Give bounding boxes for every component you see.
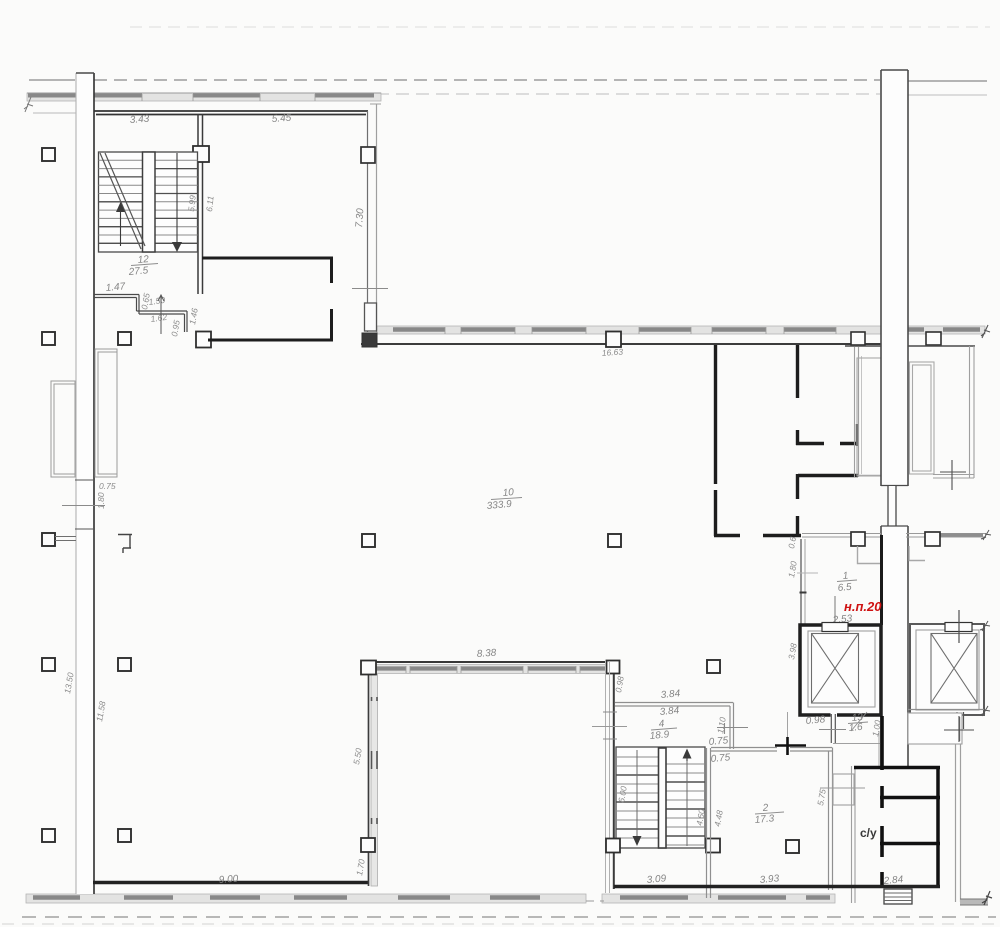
svg-text:333.9: 333.9 (486, 499, 512, 512)
svg-text:3.98: 3.98 (786, 642, 799, 660)
svg-text:1.10: 1.10 (715, 716, 728, 734)
svg-text:6.11: 6.11 (204, 195, 216, 212)
svg-text:0.98: 0.98 (805, 714, 826, 727)
svg-text:0.75: 0.75 (708, 735, 729, 748)
svg-text:3.43: 3.43 (129, 114, 150, 126)
svg-text:1.46: 1.46 (187, 307, 200, 325)
svg-text:13.50: 13.50 (62, 671, 76, 694)
svg-text:27.5: 27.5 (127, 265, 149, 278)
svg-text:18.9: 18.9 (649, 729, 670, 742)
svg-text:5.99: 5.99 (186, 194, 198, 212)
svg-text:1.62: 1.62 (150, 312, 168, 324)
svg-text:5.75: 5.75 (815, 788, 828, 806)
svg-text:4.48: 4.48 (712, 809, 725, 827)
svg-text:1.80: 1.80 (96, 492, 106, 509)
svg-text:1.6: 1.6 (848, 722, 863, 734)
svg-text:с/у: с/у (860, 826, 877, 840)
svg-text:3.93: 3.93 (759, 873, 780, 886)
svg-text:0.98: 0.98 (613, 675, 626, 693)
svg-text:1.50: 1.50 (148, 295, 166, 307)
svg-text:3.09: 3.09 (646, 873, 667, 886)
svg-text:0.75: 0.75 (710, 752, 731, 765)
svg-text:8.38: 8.38 (476, 648, 497, 660)
svg-text:16.63: 16.63 (601, 347, 623, 358)
svg-text:6.5: 6.5 (837, 582, 852, 594)
svg-text:7.30: 7.30 (354, 208, 366, 229)
svg-text:0.95: 0.95 (169, 319, 182, 337)
svg-text:0.6: 0.6 (786, 536, 798, 550)
svg-text:1.47: 1.47 (105, 281, 126, 294)
svg-text:н.п.20: н.п.20 (844, 599, 882, 614)
svg-text:2: 2 (761, 803, 769, 815)
svg-text:4: 4 (658, 719, 665, 730)
svg-text:5.50: 5.50 (351, 747, 364, 765)
svg-text:3.84: 3.84 (659, 705, 680, 718)
svg-text:0.75: 0.75 (99, 481, 116, 491)
svg-text:9.00: 9.00 (218, 874, 239, 886)
svg-text:10: 10 (502, 487, 514, 499)
svg-text:1.70: 1.70 (354, 858, 367, 876)
svg-text:11.58: 11.58 (94, 700, 107, 722)
svg-text:5.45: 5.45 (271, 113, 292, 125)
svg-text:17.3: 17.3 (754, 813, 775, 826)
svg-text:3.84: 3.84 (660, 688, 681, 701)
svg-text:1.80: 1.80 (786, 560, 799, 578)
